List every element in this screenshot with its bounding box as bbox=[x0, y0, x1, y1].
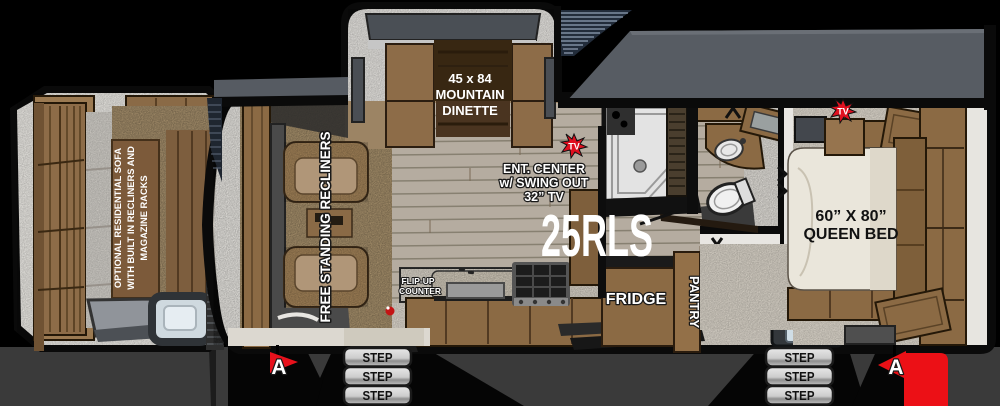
svg-text:STEP: STEP bbox=[785, 369, 815, 384]
svg-text:ENT. CENTER: ENT. CENTER bbox=[503, 162, 585, 176]
svg-text:WITH BUILT IN RECLINERS AND: WITH BUILT IN RECLINERS AND bbox=[126, 146, 136, 290]
svg-text:TV: TV bbox=[568, 142, 580, 152]
svg-text:OPTIONAL RESIDENTIAL SOFA: OPTIONAL RESIDENTIAL SOFA bbox=[113, 148, 123, 288]
svg-text:45 x 84: 45 x 84 bbox=[448, 71, 492, 86]
svg-text:MOUNTAIN: MOUNTAIN bbox=[435, 87, 504, 102]
svg-text:DINETTE: DINETTE bbox=[442, 103, 498, 118]
svg-text:60” X 80”: 60” X 80” bbox=[815, 208, 886, 225]
svg-text:PANTRY: PANTRY bbox=[687, 276, 702, 328]
svg-text:COUNTER: COUNTER bbox=[399, 286, 441, 296]
svg-text:STEP: STEP bbox=[363, 388, 393, 403]
svg-text:32” TV: 32” TV bbox=[524, 190, 564, 204]
svg-text:MAGAZINE RACKS: MAGAZINE RACKS bbox=[139, 175, 149, 260]
svg-text:QUEEN BED: QUEEN BED bbox=[803, 226, 898, 243]
svg-text:TV: TV bbox=[837, 107, 849, 117]
svg-text:25RLS: 25RLS bbox=[541, 203, 653, 269]
svg-text:FRIDGE: FRIDGE bbox=[606, 291, 667, 308]
svg-text:w/ SWING OUT: w/ SWING OUT bbox=[499, 176, 589, 190]
svg-text:STEP: STEP bbox=[785, 388, 815, 403]
svg-text:STEP: STEP bbox=[785, 350, 815, 365]
svg-text:STEP: STEP bbox=[363, 350, 393, 365]
svg-text:A: A bbox=[271, 356, 286, 379]
svg-text:STEP: STEP bbox=[363, 369, 393, 384]
svg-text:FREE STANDING RECLINERS: FREE STANDING RECLINERS bbox=[318, 131, 333, 322]
svg-text:A: A bbox=[888, 356, 903, 379]
svg-text:FLIP-UP: FLIP-UP bbox=[401, 276, 434, 286]
